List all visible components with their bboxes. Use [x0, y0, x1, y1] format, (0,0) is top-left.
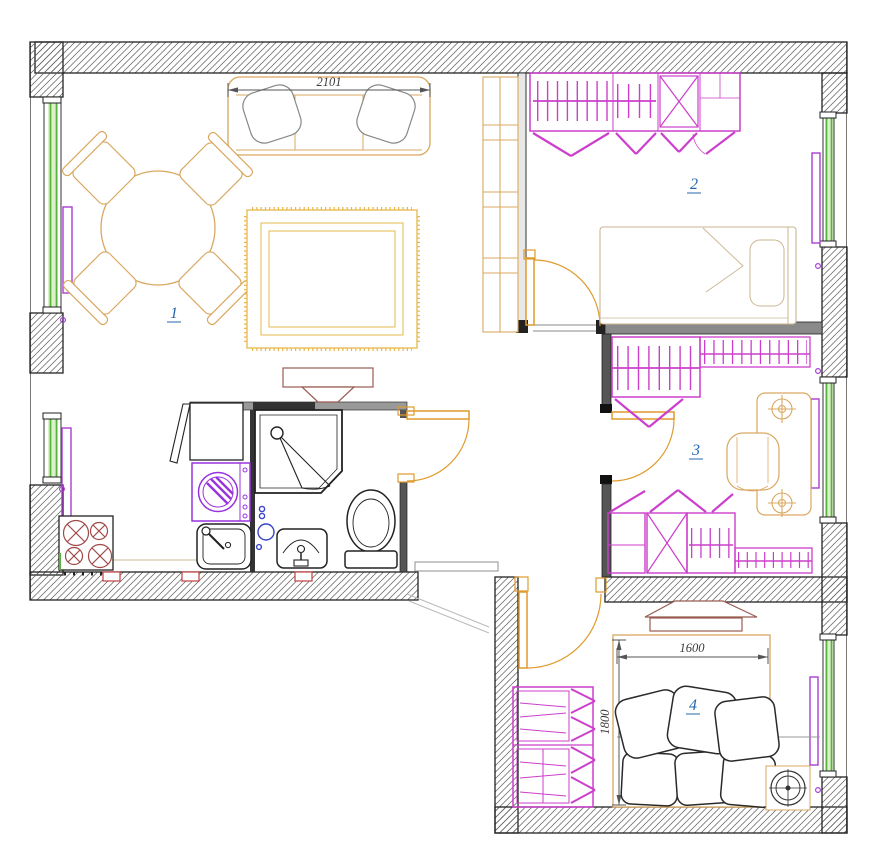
- living-room: 2101: [61, 75, 518, 402]
- wall-right-pier-a: [822, 73, 847, 113]
- wall-right-pier-b: [822, 247, 847, 377]
- wall-room3-left-lower: [602, 484, 611, 577]
- room-label-4: 4: [689, 697, 697, 714]
- bed-icon: [600, 227, 796, 324]
- rug-icon: [247, 210, 417, 348]
- washing-machine-icon: [192, 463, 250, 521]
- wardrobe-icon: [513, 687, 595, 807]
- radiator-icon: [812, 153, 820, 243]
- entrance-door-icon: [407, 562, 498, 633]
- door-icon: [515, 577, 606, 668]
- bedroom-2: 2: [530, 73, 796, 324]
- tv-icon: [645, 601, 757, 631]
- fridge-icon: [170, 403, 243, 463]
- door-icon: [524, 250, 600, 326]
- window-icon: [820, 112, 836, 247]
- window-icon: [820, 377, 836, 523]
- wall-room3-left-upper: [602, 334, 611, 406]
- room-label-2: 2: [690, 176, 698, 193]
- washbasin-icon: [277, 529, 327, 568]
- wall-frame: [600, 404, 612, 413]
- speaker-icon: [766, 766, 810, 810]
- wall-entry-pillar: [495, 577, 518, 833]
- window-icon: [820, 634, 836, 777]
- floor-drain-icon: [257, 506, 274, 549]
- wall-living-room2: [518, 73, 526, 332]
- radiator-icon: [810, 677, 818, 765]
- room-3: 3: [608, 337, 812, 573]
- dining-table-icon: [61, 130, 254, 326]
- wall-room4-top: [605, 577, 847, 602]
- wall-frame: [600, 475, 612, 484]
- wall-tv-segment: [253, 402, 315, 410]
- radiator-icon: [811, 399, 819, 488]
- wall-bath-right: [400, 482, 407, 572]
- wall-right-pier-d: [822, 777, 847, 833]
- room-label-1: 1: [170, 305, 178, 322]
- shower-icon: [255, 410, 342, 493]
- toilet-icon: [345, 490, 397, 568]
- wall-left-corner: [30, 42, 63, 97]
- window-icon: [43, 97, 61, 313]
- window-icon: [43, 413, 61, 483]
- kitchen-sink-icon: [197, 524, 251, 569]
- wall-bath-stub: [400, 410, 407, 418]
- dimension-label: 1800: [598, 709, 612, 735]
- bedroom-4: 1600 1800: [513, 601, 820, 810]
- wall-bottom-right: [495, 807, 847, 833]
- bathroom: [255, 410, 397, 568]
- floor-plan: 2101: [0, 0, 874, 847]
- bookshelf-icon: [483, 77, 518, 332]
- floor-plan-page: 2101: [0, 0, 874, 847]
- desk-icon: [727, 393, 811, 517]
- dimension-label: 1600: [680, 641, 706, 655]
- wall-right-pier-c: [822, 523, 847, 635]
- wall-bottom-left: [30, 572, 418, 600]
- wall-left-lower: [30, 485, 63, 575]
- wall-top: [35, 42, 847, 73]
- dimension-label: 2101: [317, 75, 342, 89]
- tv-icon: [283, 368, 373, 402]
- door-icon: [398, 407, 469, 482]
- wall-left-pier: [30, 313, 63, 373]
- stove-icon: [59, 516, 113, 574]
- wardrobe-icon: [530, 73, 740, 156]
- room-label-3: 3: [691, 442, 700, 459]
